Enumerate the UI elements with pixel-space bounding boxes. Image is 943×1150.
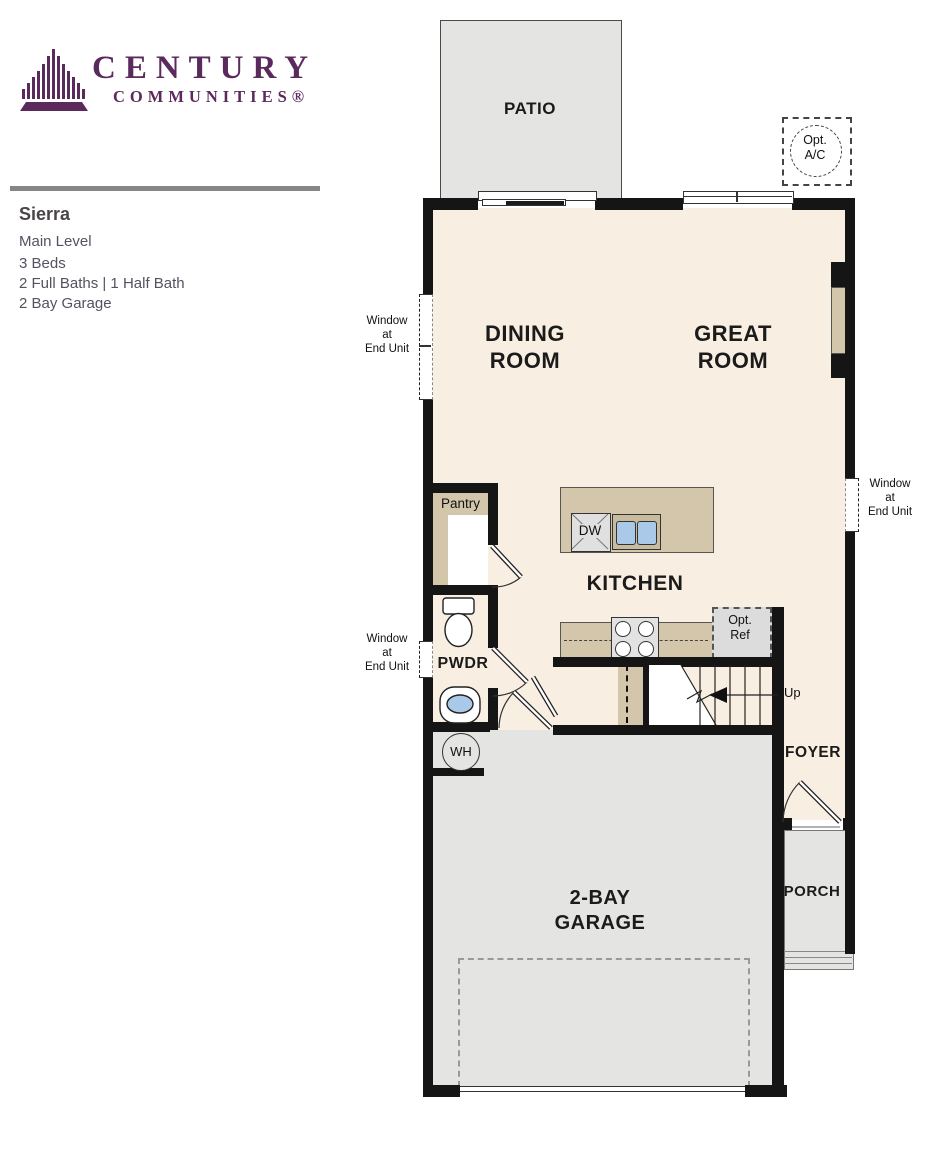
floorplan-page: CENTURY COMMUNITIES® Sierra Main Level 3…: [0, 0, 943, 1150]
water-heater-label: WH: [450, 744, 472, 759]
wall-segment: [772, 818, 792, 830]
foyer-area: [784, 727, 845, 820]
century-logo-icon: [18, 45, 90, 117]
wall-segment: [643, 662, 649, 727]
hall-cased-opening-dash: [626, 665, 628, 723]
plan-detail-baths: 2 Full Baths | 1 Half Bath: [19, 275, 185, 292]
window-end-unit-label-lower-left: Window at End Unit: [352, 632, 422, 674]
pantry-shelf-side: [433, 515, 449, 585]
stove-burner: [615, 621, 631, 637]
stove-burner: [638, 641, 654, 657]
brand-name-line2: COMMUNITIES®: [113, 87, 309, 107]
wall-segment: [845, 530, 855, 954]
wall-segment: [553, 657, 784, 667]
wall-segment: [423, 1085, 460, 1097]
foyer-label: FOYER: [781, 744, 845, 762]
wall-segment: [423, 198, 433, 294]
porch-label: PORCH: [779, 883, 845, 900]
wall-segment: [488, 493, 498, 545]
pwdr-label: PWDR: [433, 655, 493, 673]
dining-room-label: DINING ROOM: [455, 320, 595, 374]
water-heater: WH: [442, 733, 480, 771]
stairs-up-label: Up: [784, 686, 808, 700]
sink-basin-left: [616, 521, 636, 545]
kitchen-label: KITCHEN: [560, 572, 710, 596]
plan-detail-garage: 2 Bay Garage: [19, 295, 112, 312]
wall-segment: [745, 1085, 787, 1097]
porch-area: [784, 830, 854, 970]
wall-segment: [423, 398, 433, 643]
plan-level: Main Level: [19, 233, 92, 250]
plan-detail-beds: 3 Beds: [19, 255, 66, 272]
stove-burner: [615, 641, 631, 657]
wall-segment: [595, 198, 683, 210]
sink-basin-right: [637, 521, 657, 545]
wall-segment: [553, 725, 784, 735]
wall-segment: [423, 483, 498, 493]
optional-ac-label: Opt. A/C: [782, 133, 848, 163]
pantry-floor: [448, 515, 488, 585]
garage-door: [458, 1086, 747, 1092]
wall-segment: [772, 607, 784, 1097]
porch-step: [784, 951, 852, 952]
stove-burner: [638, 621, 654, 637]
porch-step: [784, 963, 852, 964]
pantry-label: Pantry: [433, 497, 488, 511]
hall-cased-opening: [618, 663, 643, 725]
patio-label: PATIO: [440, 99, 620, 119]
wall-segment: [423, 722, 490, 732]
window-end-unit-label-right: Window at End Unit: [856, 477, 924, 519]
great-room-label: GREAT ROOM: [663, 320, 803, 374]
garage-label: 2-BAY GARAGE: [520, 886, 680, 936]
wall-segment: [845, 198, 855, 478]
brand-name-line1: CENTURY: [92, 50, 317, 87]
great-room-window: [683, 191, 794, 204]
divider-rule: [10, 186, 320, 191]
wall-segment: [423, 676, 433, 1097]
fireplace-insert: [831, 287, 846, 354]
porch-step: [784, 957, 852, 958]
optional-ref-label: Opt. Ref: [712, 613, 768, 643]
great-room-window-line: [683, 196, 792, 197]
window-end-unit-label-upper-left: Window at End Unit: [352, 314, 422, 356]
wall-segment: [843, 818, 855, 830]
wall-segment: [488, 595, 498, 648]
century-communities-logo: CENTURY COMMUNITIES®: [0, 0, 340, 130]
dishwasher-label: DW: [573, 524, 607, 538]
plan-name: Sierra: [19, 204, 70, 225]
garage-door-dashed-outline: [458, 958, 750, 1087]
sliding-glass-door-track: [506, 201, 564, 205]
wall-segment: [423, 585, 498, 595]
